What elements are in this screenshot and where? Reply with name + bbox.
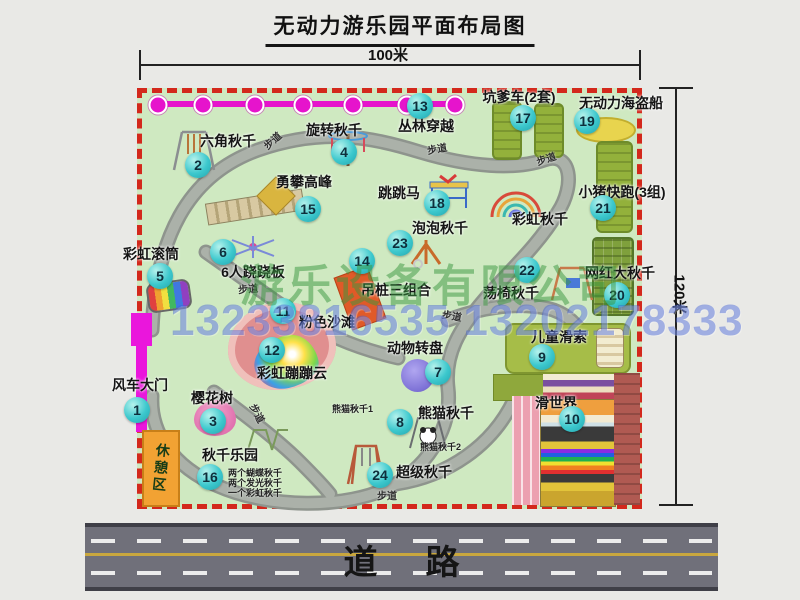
road-label: 道路	[85, 535, 718, 584]
zipline-dot	[246, 96, 265, 115]
badge-15: 15	[295, 196, 321, 222]
badge-17: 17	[510, 105, 536, 131]
label-rocking-chair-swing: 荡椅秋千	[483, 283, 539, 303]
badge-21: 21	[590, 195, 616, 221]
label-hanging-piles: 吊桩三组合	[361, 280, 431, 300]
badge-5: 5	[147, 263, 173, 289]
trail-label: 步道	[441, 306, 463, 324]
label-pig-run: 小猪快跑(3组)	[578, 182, 665, 202]
trail-label: 步道	[237, 280, 258, 297]
zipline-dot	[194, 96, 213, 115]
zipline-dot	[149, 96, 168, 115]
top-dimension-tick-left	[139, 50, 141, 80]
label-panda-swing: 熊猫秋千	[418, 403, 474, 423]
label-swing-park: 秋千乐园	[202, 445, 258, 465]
label-bubble-swing: 泡泡秋千	[412, 218, 468, 238]
badge-3: 3	[200, 408, 226, 434]
kids-zipline-roll-icon	[596, 328, 624, 368]
badge-4: 4	[331, 139, 357, 165]
road: 道路	[85, 523, 718, 591]
badge-8: 8	[387, 409, 413, 435]
rest-area-label: 休憩区	[148, 442, 173, 495]
badge-16: 16	[197, 464, 223, 490]
label-rainbow-swing: 彩虹秋千	[512, 209, 568, 229]
badge-10: 10	[559, 406, 585, 432]
right-dimension-tick-bottom	[659, 504, 693, 506]
label-jungle-crossing: 丛林穿越	[398, 116, 454, 136]
label-rotating-swing: 旋转秋千	[306, 120, 362, 140]
badge-7: 7	[425, 359, 451, 385]
label-panda-swing-1: 熊猫秋千1	[332, 402, 373, 415]
label-big-swing: 网红大秋千	[585, 263, 655, 283]
label-hexagon-swing: 六角秋千	[200, 131, 256, 151]
label-swing-park-item-3: 一个彩虹秋千	[228, 486, 282, 499]
windmill-gate-icon	[131, 313, 152, 346]
trail-label: 步道	[377, 488, 397, 503]
badge-6: 6	[210, 239, 236, 265]
top-dimension-tick-right	[639, 50, 641, 80]
width-dimension-label: 100米	[368, 44, 408, 65]
height-dimension-label: 120米	[670, 267, 691, 323]
badge-1: 1	[124, 397, 150, 423]
label-rainbow-roller: 彩虹滚筒	[123, 244, 179, 264]
label-seesaw: 6人跷跷板	[221, 262, 285, 282]
label-rainbow-cloud: 彩虹蹦蹦云	[257, 363, 327, 383]
zipline-dot	[294, 96, 313, 115]
label-animal-carousel: 动物转盘	[387, 338, 443, 358]
label-climbing-peak: 勇攀高峰	[276, 172, 332, 192]
badge-11: 11	[270, 298, 296, 324]
rest-area-box: 休憩区	[142, 430, 180, 507]
right-dimension-tick-top	[659, 87, 693, 89]
badge-24: 24	[367, 462, 393, 488]
badge-14: 14	[349, 248, 375, 274]
slide-world-right-icon	[614, 373, 640, 505]
label-pit-cars: 坑爹车(2套)	[482, 87, 555, 107]
label-panda-swing-2: 熊猫秋千2	[420, 440, 461, 453]
badge-20: 20	[604, 282, 630, 308]
park-plan: 无动力游乐园平面布局图 100米 120米	[0, 0, 800, 600]
label-jumping-horse: 跳跳马	[378, 183, 420, 203]
label-pink-beach: 粉色沙滩	[299, 312, 355, 332]
label-super-swing: 超级秋千	[396, 462, 452, 482]
badge-23: 23	[387, 230, 413, 256]
badge-2: 2	[185, 152, 211, 178]
label-cherry-tree: 樱花树	[191, 388, 233, 408]
badge-18: 18	[424, 190, 450, 216]
zipline-dot	[344, 96, 363, 115]
badge-22: 22	[514, 257, 540, 283]
label-windmill-gate: 风车大门	[112, 375, 168, 395]
badge-9: 9	[529, 344, 555, 370]
page-title: 无动力游乐园平面布局图	[266, 10, 535, 47]
badge-12: 12	[259, 337, 285, 363]
badge-13: 13	[407, 93, 433, 119]
badge-19: 19	[574, 108, 600, 134]
zipline-dot	[446, 96, 465, 115]
